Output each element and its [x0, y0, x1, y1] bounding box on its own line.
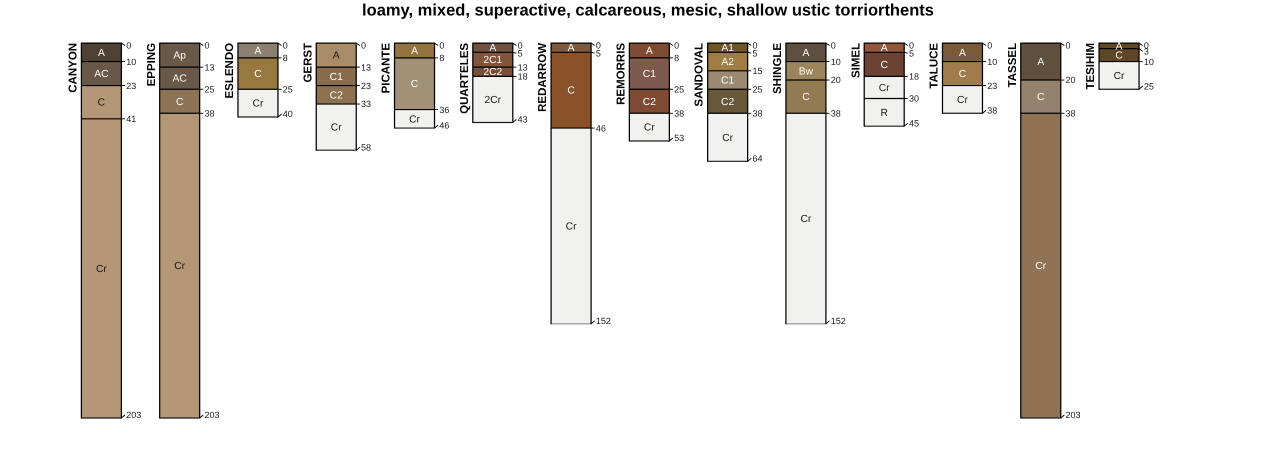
svg-text:REMORRIS: REMORRIS	[615, 43, 627, 105]
svg-text:AC: AC	[94, 69, 109, 80]
svg-text:2C1: 2C1	[483, 55, 502, 66]
svg-text:20: 20	[831, 75, 841, 85]
svg-text:13: 13	[204, 62, 214, 72]
svg-text:SHINGLE: SHINGLE	[772, 43, 784, 94]
svg-text:Cr: Cr	[566, 221, 577, 232]
svg-text:2Cr: 2Cr	[485, 95, 502, 106]
svg-text:A: A	[411, 46, 418, 57]
svg-text:GERST: GERST	[302, 43, 314, 83]
svg-text:C: C	[98, 98, 106, 109]
svg-text:C2: C2	[643, 97, 656, 108]
svg-text:8: 8	[674, 53, 679, 63]
svg-text:18: 18	[909, 72, 919, 82]
svg-text:38: 38	[1066, 108, 1076, 118]
svg-text:10: 10	[831, 57, 841, 67]
svg-text:C1: C1	[330, 72, 343, 83]
svg-text:REDARROW: REDARROW	[537, 43, 549, 112]
svg-text:A: A	[568, 43, 575, 54]
svg-text:38: 38	[831, 108, 841, 118]
svg-text:38: 38	[752, 108, 762, 118]
svg-text:A: A	[881, 43, 888, 54]
svg-text:R: R	[880, 108, 887, 119]
svg-text:23: 23	[987, 81, 997, 91]
svg-text:A: A	[646, 46, 653, 57]
svg-text:36: 36	[439, 105, 449, 115]
svg-text:25: 25	[204, 84, 214, 94]
svg-text:C: C	[880, 60, 888, 71]
svg-text:C2: C2	[721, 97, 734, 108]
svg-text:A: A	[1037, 57, 1044, 68]
svg-text:C: C	[1037, 92, 1045, 103]
svg-text:AC: AC	[173, 74, 188, 85]
svg-text:10: 10	[126, 57, 136, 67]
svg-text:C: C	[567, 86, 575, 97]
svg-text:C: C	[802, 92, 810, 103]
svg-text:Cr: Cr	[253, 99, 264, 110]
svg-text:18: 18	[518, 72, 528, 82]
svg-text:15: 15	[752, 66, 762, 76]
svg-text:Cr: Cr	[800, 214, 811, 225]
svg-text:0: 0	[1066, 41, 1071, 51]
svg-text:203: 203	[126, 410, 141, 420]
svg-text:C2: C2	[330, 90, 343, 101]
svg-text:C1: C1	[721, 76, 734, 87]
svg-text:10: 10	[987, 57, 997, 67]
svg-text:Cr: Cr	[722, 133, 733, 144]
svg-text:20: 20	[1066, 75, 1076, 85]
svg-text:A2: A2	[721, 57, 734, 68]
svg-text:Cr: Cr	[174, 261, 185, 272]
svg-text:0: 0	[361, 41, 366, 51]
svg-text:38: 38	[204, 108, 214, 118]
svg-text:TESIHIM: TESIHIM	[1085, 43, 1097, 90]
svg-text:Cr: Cr	[644, 123, 655, 134]
svg-text:ESLENDO: ESLENDO	[224, 43, 236, 99]
svg-text:25: 25	[1144, 81, 1154, 91]
svg-text:0: 0	[987, 41, 992, 51]
svg-text:3: 3	[1144, 47, 1149, 57]
svg-text:C: C	[254, 69, 262, 80]
svg-text:Cr: Cr	[409, 114, 420, 125]
svg-text:8: 8	[283, 53, 288, 63]
svg-text:33: 33	[361, 99, 371, 109]
svg-text:23: 23	[361, 81, 371, 91]
svg-text:152: 152	[596, 316, 611, 326]
svg-text:PICANTE: PICANTE	[381, 43, 393, 94]
svg-text:45: 45	[909, 118, 919, 128]
svg-text:A: A	[802, 48, 809, 59]
svg-text:13: 13	[361, 62, 371, 72]
svg-text:C: C	[1115, 51, 1123, 62]
svg-text:0: 0	[204, 41, 209, 51]
svg-text:43: 43	[518, 115, 528, 125]
svg-text:Cr: Cr	[879, 83, 890, 94]
svg-text:46: 46	[596, 123, 606, 133]
svg-text:0: 0	[674, 41, 679, 51]
svg-text:Cr: Cr	[1114, 71, 1125, 82]
svg-text:A: A	[98, 48, 105, 59]
svg-text:53: 53	[674, 133, 684, 143]
svg-text:loamy, mixed, superactive, cal: loamy, mixed, superactive, calcareous, m…	[362, 2, 934, 20]
svg-text:8: 8	[439, 53, 444, 63]
svg-text:C: C	[959, 69, 967, 80]
svg-text:Cr: Cr	[331, 123, 342, 134]
svg-text:A: A	[333, 51, 340, 62]
svg-text:QUARTELES: QUARTELES	[459, 43, 471, 114]
svg-text:Cr: Cr	[957, 95, 968, 106]
svg-text:5: 5	[596, 48, 601, 58]
svg-text:25: 25	[674, 84, 684, 94]
svg-text:40: 40	[283, 109, 293, 119]
svg-text:58: 58	[361, 142, 371, 152]
svg-text:0: 0	[831, 41, 836, 51]
svg-text:203: 203	[1066, 410, 1081, 420]
svg-text:Cr: Cr	[96, 264, 107, 275]
svg-text:30: 30	[909, 94, 919, 104]
svg-text:38: 38	[987, 105, 997, 115]
svg-text:203: 203	[204, 410, 219, 420]
svg-text:C: C	[176, 97, 184, 108]
svg-text:38: 38	[674, 108, 684, 118]
svg-text:A1: A1	[721, 43, 734, 54]
svg-text:2C2: 2C2	[483, 67, 502, 78]
svg-text:CANYON: CANYON	[68, 43, 80, 93]
svg-text:0: 0	[439, 41, 444, 51]
svg-text:C1: C1	[643, 69, 656, 80]
svg-text:A: A	[255, 46, 262, 57]
svg-text:5: 5	[909, 48, 914, 58]
svg-text:A: A	[489, 43, 496, 54]
svg-text:C: C	[411, 79, 419, 90]
svg-text:TALUCE: TALUCE	[929, 43, 941, 89]
svg-text:Cr: Cr	[1035, 261, 1046, 272]
svg-text:10: 10	[1144, 57, 1154, 67]
svg-text:SANDOVAL: SANDOVAL	[694, 43, 706, 107]
svg-text:5: 5	[518, 48, 523, 58]
svg-text:A: A	[959, 48, 966, 59]
svg-text:23: 23	[126, 81, 136, 91]
svg-text:0: 0	[283, 41, 288, 51]
svg-text:0: 0	[126, 41, 131, 51]
svg-text:EPPING: EPPING	[146, 43, 158, 87]
svg-text:41: 41	[126, 114, 136, 124]
svg-text:Bw: Bw	[799, 66, 814, 77]
svg-text:64: 64	[752, 153, 762, 163]
svg-text:Ap: Ap	[173, 51, 186, 62]
svg-text:46: 46	[439, 120, 449, 130]
svg-text:SIMEL: SIMEL	[850, 43, 862, 78]
svg-text:25: 25	[283, 84, 293, 94]
svg-text:TASSEL: TASSEL	[1007, 43, 1019, 88]
svg-text:5: 5	[752, 48, 757, 58]
svg-text:152: 152	[831, 316, 846, 326]
svg-text:25: 25	[752, 84, 762, 94]
